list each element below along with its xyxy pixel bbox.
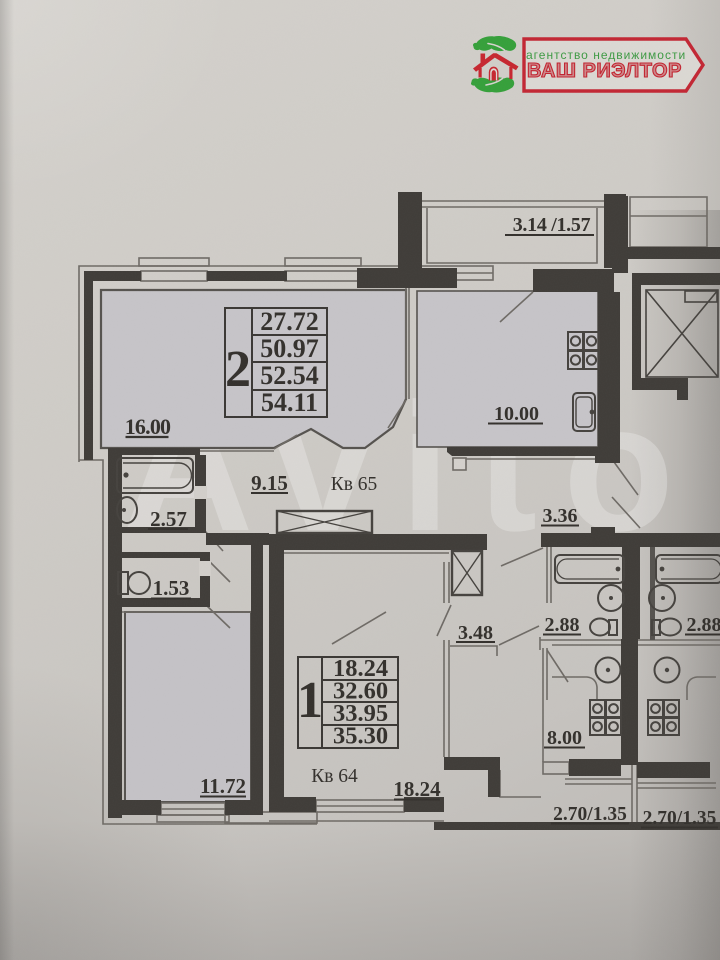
svg-text:52.54: 52.54 (260, 361, 319, 390)
svg-text:54.11: 54.11 (261, 388, 318, 417)
svg-text:3.48: 3.48 (458, 622, 493, 644)
svg-text:3.36: 3.36 (543, 505, 578, 527)
svg-text:18.24: 18.24 (393, 777, 441, 801)
svg-text:2.70/1.35: 2.70/1.35 (553, 804, 627, 825)
svg-text:1: 1 (297, 672, 323, 729)
svg-text:9.15: 9.15 (251, 471, 288, 495)
svg-text:16.00: 16.00 (125, 414, 171, 439)
svg-text:1.53: 1.53 (153, 576, 190, 600)
svg-text:2.88: 2.88 (545, 614, 580, 636)
svg-text:27.72: 27.72 (260, 307, 319, 336)
svg-text:8.00: 8.00 (547, 727, 582, 749)
svg-text:10.00: 10.00 (494, 403, 539, 425)
svg-text:ВАШ РИЭЛТОР: ВАШ РИЭЛТОР (527, 60, 682, 82)
svg-text:2: 2 (225, 341, 251, 398)
svg-text:Кв 65: Кв 65 (331, 474, 378, 495)
svg-text:2.88: 2.88 (687, 614, 720, 636)
svg-text:11.72: 11.72 (200, 774, 246, 798)
svg-text:2.57: 2.57 (150, 507, 187, 531)
svg-text:50.97: 50.97 (260, 334, 319, 363)
svg-text:2.70/1.35: 2.70/1.35 (643, 808, 717, 829)
svg-text:Кв 64: Кв 64 (311, 766, 358, 787)
svg-text:3.14 /1.57: 3.14 /1.57 (513, 214, 591, 236)
svg-text:35.30: 35.30 (333, 723, 388, 750)
